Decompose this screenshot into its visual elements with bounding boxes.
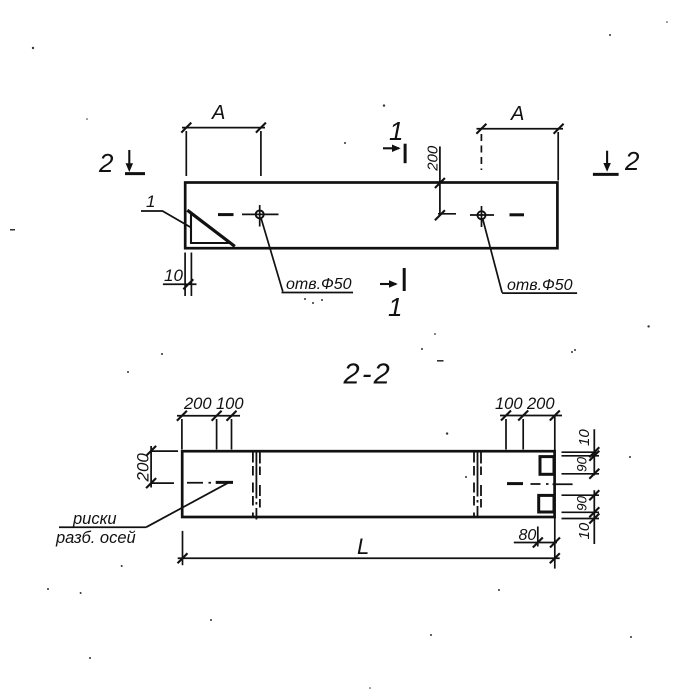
svg-text:200: 200 xyxy=(183,395,212,413)
svg-text:А: А xyxy=(211,102,225,124)
svg-text:90: 90 xyxy=(575,456,590,472)
svg-text:200: 200 xyxy=(134,453,153,483)
svg-text:100: 100 xyxy=(216,395,244,413)
svg-text:200: 200 xyxy=(526,395,555,413)
svg-text:L: L xyxy=(357,534,369,559)
svg-text:100: 100 xyxy=(495,395,523,413)
svg-text:отв.Ф50: отв.Ф50 xyxy=(507,277,573,294)
svg-text:1: 1 xyxy=(388,292,402,322)
svg-text:А: А xyxy=(510,103,524,125)
svg-text:10: 10 xyxy=(576,429,593,446)
svg-text:отв.Ф50: отв.Ф50 xyxy=(286,276,352,293)
svg-text:2-2: 2-2 xyxy=(343,359,393,391)
svg-text:80: 80 xyxy=(519,527,537,544)
svg-text:риски: риски xyxy=(72,510,117,528)
svg-text:2: 2 xyxy=(624,146,640,176)
svg-text:90: 90 xyxy=(575,495,590,511)
svg-text:2: 2 xyxy=(98,148,114,178)
svg-text:1: 1 xyxy=(146,192,155,211)
svg-text:10: 10 xyxy=(164,266,183,285)
svg-text:10: 10 xyxy=(576,522,593,539)
svg-text:200: 200 xyxy=(425,145,442,172)
svg-text:разб. осей: разб. осей xyxy=(55,529,136,547)
svg-text:1: 1 xyxy=(389,116,403,146)
